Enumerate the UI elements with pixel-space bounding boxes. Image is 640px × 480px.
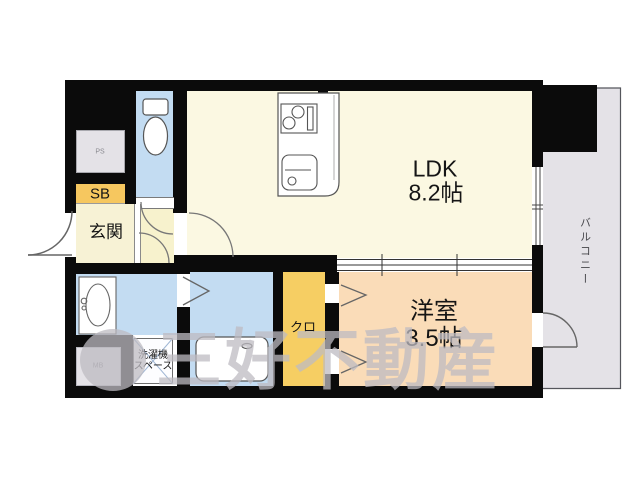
room-bathroom — [190, 272, 273, 386]
wall-band-entry — [65, 263, 190, 274]
washer-label-line1: 洗濯機 — [138, 351, 168, 361]
wall-block-topleft — [65, 80, 130, 130]
wall-closet-stub2 — [325, 303, 339, 349]
ldk-door-opening — [174, 213, 187, 255]
wall-closet-stub1 — [325, 272, 339, 284]
balcony-label: バルコニー — [579, 217, 590, 287]
wall-bottom — [65, 386, 543, 398]
ldk-size-label: 8.2帖 — [409, 182, 464, 205]
sliding-door-strip — [337, 258, 532, 272]
room-washroom — [76, 274, 177, 335]
wall-kitchen-stub — [318, 91, 328, 150]
shoe-box-label: SB — [90, 187, 110, 202]
wall-top — [65, 80, 543, 91]
wall-block-topright — [532, 85, 597, 152]
closet-fold-opening1 — [325, 284, 339, 303]
ldk-window-opening — [532, 167, 543, 245]
ldk-label: LDK — [413, 158, 458, 181]
balcony-door-opening — [532, 313, 543, 347]
wall-closet-stub3 — [325, 374, 339, 386]
pipe-space-label: PS — [95, 149, 104, 156]
western-room-label: 洋室 — [410, 300, 458, 324]
wall-below-ps — [76, 173, 130, 184]
wall-right-b — [532, 245, 543, 313]
wall-toilet-left — [125, 91, 136, 204]
balcony-area-top — [597, 88, 621, 152]
meter-box-label: MB — [93, 363, 104, 370]
closet-label: クロ — [290, 321, 316, 334]
room-toilet — [136, 91, 173, 198]
wall-right-c — [532, 347, 543, 398]
closet-fold-opening2 — [325, 349, 339, 374]
entrance-label: 玄関 — [89, 224, 123, 241]
wall-left-lower — [65, 257, 76, 398]
washer-label-line2: スペース — [134, 362, 173, 372]
wall-washer-band — [65, 335, 133, 347]
entrance-door-opening — [65, 213, 76, 257]
room-ldk — [187, 91, 532, 262]
entrance-step-line — [134, 204, 141, 263]
wall-toilet-right — [173, 91, 187, 213]
wall-wash-bath — [177, 307, 190, 398]
wall-bath-right — [273, 263, 283, 398]
western-room-size-label: 3.5帖 — [405, 327, 462, 351]
toilet-door — [136, 197, 174, 209]
floorplan: LDK 8.2帖 洋室 3.5帖 玄関 SB クロ 洗濯機 スペース バルコニー… — [0, 0, 640, 480]
room-hallway — [141, 204, 174, 263]
bath-fold-door-opening — [177, 274, 190, 307]
wall-band-ldk — [187, 255, 337, 272]
